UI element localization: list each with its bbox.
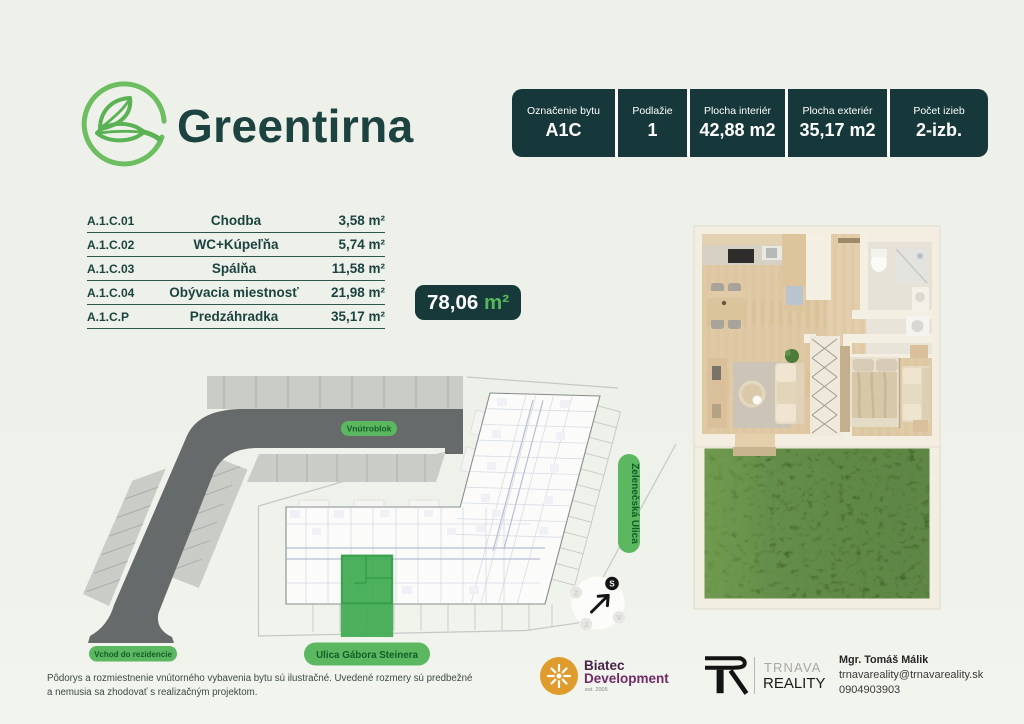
svg-text:Zelenečská Ulica: Zelenečská Ulica — [629, 463, 640, 544]
svg-text:J: J — [584, 620, 588, 629]
svg-text:Vnútroblok: Vnútroblok — [347, 424, 392, 434]
svg-text:V: V — [616, 613, 621, 622]
svg-text:S: S — [609, 580, 615, 589]
svg-text:Z: Z — [574, 588, 579, 597]
svg-text:Ulica Gábora Steinera: Ulica Gábora Steinera — [316, 650, 418, 661]
svg-text:Vchod do rezidencie: Vchod do rezidencie — [94, 650, 172, 659]
